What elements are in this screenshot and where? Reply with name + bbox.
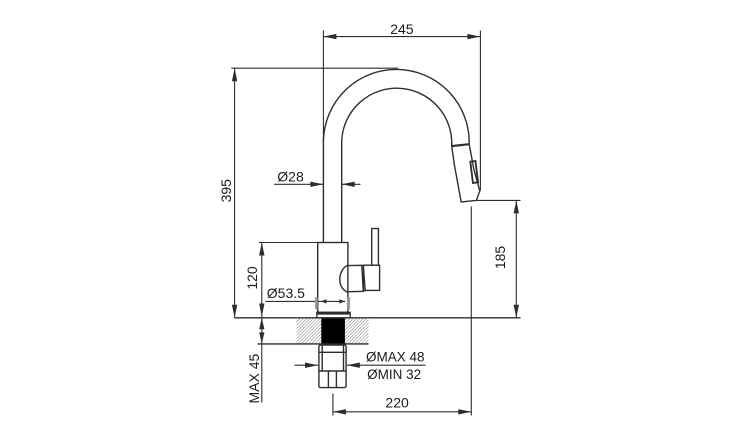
svg-text:Ø28: Ø28 bbox=[277, 168, 304, 184]
svg-text:120: 120 bbox=[244, 266, 260, 290]
svg-text:ØMIN 32: ØMIN 32 bbox=[367, 367, 421, 382]
svg-text:185: 185 bbox=[492, 246, 508, 270]
svg-text:ØMAX 48: ØMAX 48 bbox=[366, 349, 425, 364]
svg-text:MAX 45: MAX 45 bbox=[246, 353, 262, 403]
svg-text:220: 220 bbox=[385, 395, 409, 411]
svg-text:395: 395 bbox=[218, 179, 234, 203]
svg-text:245: 245 bbox=[390, 21, 414, 37]
svg-text:Ø53.5: Ø53.5 bbox=[267, 285, 305, 301]
